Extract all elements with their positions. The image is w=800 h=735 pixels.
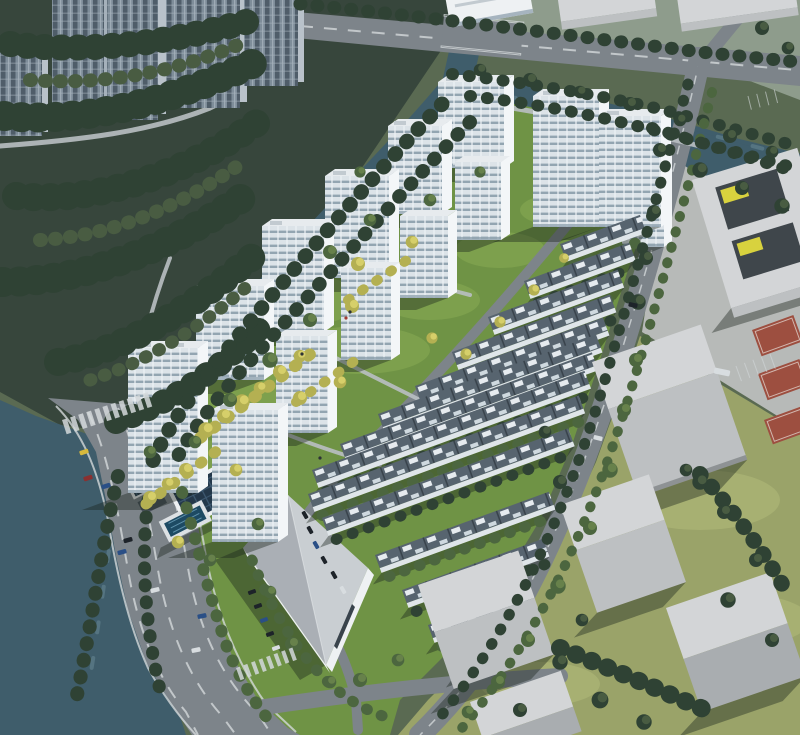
masterplan-rendering [0,0,800,735]
pedestrian [318,456,321,459]
pedestrian [348,310,351,313]
pedestrian [300,352,303,355]
pedestrian [344,316,347,319]
aerial-rendering-canvas [0,0,800,735]
